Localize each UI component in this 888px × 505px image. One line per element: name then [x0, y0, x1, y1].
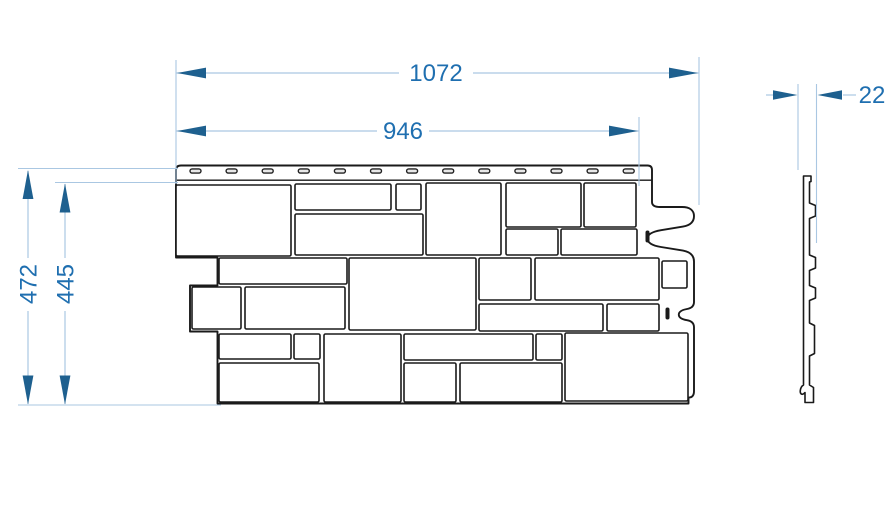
stone-block [295, 214, 423, 255]
stone-block [192, 287, 241, 329]
nail-slot [371, 169, 382, 173]
stone-block [219, 363, 319, 402]
stone-block [176, 185, 291, 256]
stone-block [535, 258, 659, 300]
stone-block [294, 334, 320, 359]
stone-block [426, 183, 501, 255]
stone-block [561, 229, 637, 255]
nail-slot [479, 169, 490, 173]
nail-slot [551, 169, 562, 173]
stone-block [479, 258, 531, 300]
stone-block [662, 261, 687, 288]
nail-slot [443, 169, 454, 173]
side-profile-outline [800, 176, 815, 403]
arrowhead-left-icon [177, 68, 206, 79]
dimension-total-height: 472 [16, 170, 43, 405]
stone-block [607, 304, 659, 331]
nail-slot [587, 169, 598, 173]
dimension-label-total-height: 472 [16, 264, 43, 304]
arrowhead-left-icon [177, 126, 206, 137]
dimension-label-exposed-width: 946 [383, 118, 423, 145]
front-view [176, 166, 694, 404]
edge-nail-slot [666, 308, 670, 320]
stone-block [324, 334, 401, 402]
nail-slot [298, 169, 309, 173]
stone-block [295, 184, 391, 210]
dimension-exposed-width: 946 [176, 118, 639, 145]
stone-block [245, 287, 345, 329]
arrowhead-up-icon [60, 184, 71, 213]
stone-block [219, 258, 347, 284]
stone-block [396, 184, 421, 210]
arrowhead-right-icon [669, 68, 698, 79]
arrowhead-right-icon [773, 90, 798, 100]
stone-block [404, 334, 533, 360]
side-view [800, 176, 815, 403]
stone-block [349, 258, 476, 330]
arrowhead-down-icon [23, 376, 34, 405]
dimension-total-width: 1072 [176, 60, 699, 87]
stone-block [506, 229, 558, 255]
stone-block [584, 183, 636, 227]
stone-block [404, 363, 456, 402]
stone-block [219, 334, 291, 359]
edge-nail-slot [646, 231, 650, 243]
technical-drawing-canvas: 1072 946 472 445 22 [0, 0, 888, 505]
arrowhead-up-icon [23, 170, 34, 199]
stone-block [506, 183, 581, 227]
nail-slot [262, 169, 273, 173]
nail-slot [226, 169, 237, 173]
dimension-label-thickness: 22 [859, 82, 886, 109]
nail-slot [407, 169, 418, 173]
nail-slot [190, 169, 201, 173]
stone-block [479, 304, 603, 331]
dimension-thickness: 22 [766, 82, 885, 109]
stone-block [565, 333, 688, 401]
arrowhead-right-icon [609, 126, 638, 137]
stone-block [460, 363, 562, 402]
nail-slot [334, 169, 345, 173]
arrowhead-left-icon [818, 90, 843, 100]
stone-block [536, 334, 562, 360]
dimension-exposed-height: 445 [53, 184, 80, 405]
dimension-label-exposed-height: 445 [53, 264, 80, 304]
stone-blocks-layer [176, 183, 688, 402]
nail-slot [515, 169, 526, 173]
arrowhead-down-icon [60, 376, 71, 405]
nail-slot [623, 169, 634, 173]
dimension-label-total-width: 1072 [409, 60, 462, 87]
facade-panel-drawing: 1072 946 472 445 22 [0, 0, 888, 505]
